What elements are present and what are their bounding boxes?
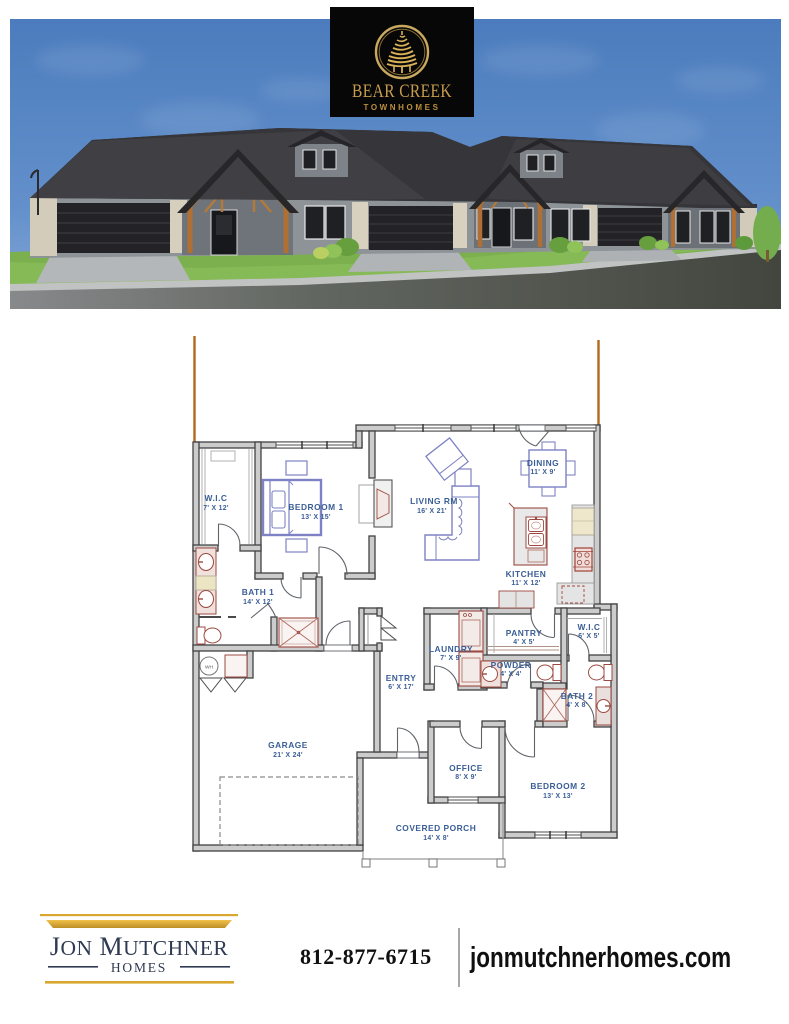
svg-text:WH: WH: [205, 665, 214, 671]
svg-text:6' X 17': 6' X 17': [388, 684, 414, 691]
svg-text:16' X 21': 16' X 21': [417, 508, 447, 515]
svg-text:7' X 9': 7' X 9': [440, 655, 462, 662]
svg-text:13' X 13': 13' X 13': [543, 793, 573, 800]
svg-text:14' X 8': 14' X 8': [423, 835, 449, 842]
svg-text:ENTRY: ENTRY: [386, 673, 417, 683]
svg-text:TOWNHOMES: TOWNHOMES: [363, 103, 440, 112]
svg-text:OFFICE: OFFICE: [449, 763, 483, 773]
svg-text:11' X 9': 11' X 9': [530, 469, 555, 476]
svg-text:jonmutchnerhomes.com: jonmutchnerhomes.com: [469, 942, 731, 973]
svg-text:BATH 1: BATH 1: [242, 587, 275, 597]
svg-text:BEDROOM 2: BEDROOM 2: [530, 781, 585, 791]
svg-text:W.I.C: W.I.C: [205, 493, 228, 503]
svg-text:BATH 2: BATH 2: [561, 691, 594, 701]
svg-text:PANTRY: PANTRY: [506, 628, 543, 638]
svg-text:13' X 15': 13' X 15': [301, 514, 331, 521]
svg-text:POWDER: POWDER: [491, 660, 532, 670]
svg-text:4' X 5': 4' X 5': [513, 639, 535, 646]
svg-text:DINING: DINING: [527, 458, 559, 468]
svg-text:JON MUTCHNER: JON MUTCHNER: [50, 932, 228, 961]
svg-text:KITCHEN: KITCHEN: [506, 569, 547, 579]
svg-text:LAUNDRY: LAUNDRY: [429, 644, 473, 654]
svg-text:6' X 5': 6' X 5': [578, 633, 600, 640]
svg-text:8' X 9': 8' X 9': [455, 774, 477, 781]
svg-text:W.I.C: W.I.C: [578, 622, 601, 632]
svg-text:7' X 12': 7' X 12': [203, 505, 229, 512]
svg-text:LIVING RM: LIVING RM: [410, 496, 458, 506]
svg-text:COVERED PORCH: COVERED PORCH: [396, 823, 477, 833]
svg-text:GARAGE: GARAGE: [268, 740, 308, 750]
svg-text:11' X 12': 11' X 12': [511, 580, 540, 587]
svg-text:BEDROOM 1: BEDROOM 1: [288, 502, 343, 512]
svg-text:HOMES: HOMES: [111, 960, 167, 975]
svg-text:BEAR CREEK: BEAR CREEK: [352, 81, 452, 102]
svg-text:21' X 24': 21' X 24': [273, 752, 303, 759]
svg-text:812-877-6715: 812-877-6715: [300, 944, 432, 969]
svg-text:4' X 8': 4' X 8': [566, 702, 588, 709]
svg-text:4' X 4': 4' X 4': [500, 671, 522, 678]
svg-text:14' X 12': 14' X 12': [243, 599, 273, 606]
